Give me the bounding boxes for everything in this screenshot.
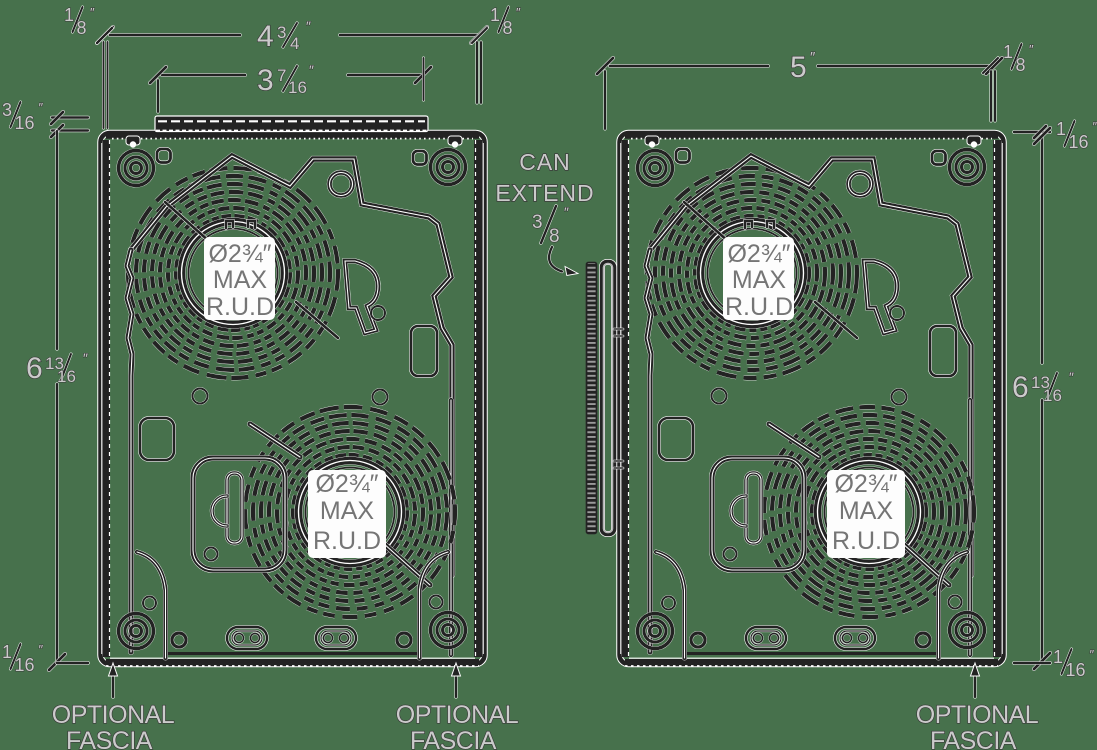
svg-text:″: ″ — [564, 204, 569, 220]
svg-text:EXTEND: EXTEND — [495, 180, 594, 206]
svg-text:6: 6 — [26, 352, 43, 385]
svg-text:″: ″ — [810, 49, 816, 66]
svg-text:CAN: CAN — [519, 149, 571, 175]
svg-text:Ø2¾″: Ø2¾″ — [727, 240, 790, 268]
svg-text:″: ″ — [1069, 369, 1074, 385]
svg-text:″: ″ — [83, 350, 88, 366]
svg-text:OPTIONAL: OPTIONAL — [916, 701, 1039, 729]
svg-text:3: 3 — [532, 212, 543, 233]
svg-text:6: 6 — [1012, 371, 1029, 404]
svg-text:R.U.D: R.U.D — [313, 527, 381, 555]
svg-text:16: 16 — [1066, 660, 1086, 680]
svg-text:MAX: MAX — [213, 266, 268, 294]
svg-text:R.U.D: R.U.D — [725, 293, 793, 321]
svg-text:FASCIA: FASCIA — [930, 727, 1017, 750]
svg-text:OPTIONAL: OPTIONAL — [396, 701, 519, 729]
svg-text:16: 16 — [1043, 386, 1062, 405]
svg-text:FASCIA: FASCIA — [410, 727, 497, 750]
svg-text:16: 16 — [1069, 132, 1089, 152]
svg-text:Ø2¾″: Ø2¾″ — [834, 470, 897, 498]
svg-text:″: ″ — [309, 62, 314, 78]
svg-text:16: 16 — [288, 78, 307, 97]
svg-text:″: ″ — [516, 5, 521, 20]
svg-text:4: 4 — [290, 34, 299, 53]
svg-text:″: ″ — [306, 18, 311, 34]
svg-text:″: ″ — [1090, 647, 1095, 662]
svg-text:7: 7 — [277, 66, 286, 85]
svg-text:1: 1 — [490, 5, 500, 25]
svg-text:1: 1 — [64, 5, 74, 25]
svg-text:1: 1 — [1053, 647, 1063, 667]
svg-text:Ø2¾″: Ø2¾″ — [208, 240, 271, 268]
svg-text:″: ″ — [39, 642, 44, 657]
svg-text:″: ″ — [1093, 119, 1097, 134]
svg-text:Ø2¾″: Ø2¾″ — [315, 470, 378, 498]
svg-text:1: 1 — [1003, 42, 1013, 62]
svg-text:8: 8 — [549, 226, 560, 247]
svg-text:8: 8 — [1016, 55, 1026, 75]
svg-text:″: ″ — [90, 5, 95, 20]
svg-text:MAX: MAX — [320, 497, 375, 525]
svg-text:8: 8 — [503, 18, 513, 38]
svg-text:R.U.D: R.U.D — [206, 293, 274, 321]
svg-text:MAX: MAX — [839, 497, 894, 525]
svg-text:16: 16 — [57, 367, 76, 386]
svg-text:OPTIONAL: OPTIONAL — [52, 701, 175, 729]
svg-text:3: 3 — [257, 64, 274, 97]
svg-text:MAX: MAX — [732, 266, 787, 294]
svg-text:1: 1 — [2, 642, 12, 662]
svg-text:″: ″ — [39, 100, 44, 115]
svg-text:3: 3 — [2, 100, 12, 120]
svg-text:3: 3 — [277, 23, 286, 42]
svg-text:8: 8 — [77, 18, 87, 38]
svg-text:16: 16 — [15, 655, 35, 675]
svg-text:FASCIA: FASCIA — [66, 727, 153, 750]
svg-text:16: 16 — [15, 113, 35, 133]
svg-text:5: 5 — [790, 51, 807, 84]
svg-text:4: 4 — [257, 20, 274, 53]
svg-text:1: 1 — [1056, 119, 1066, 139]
svg-text:″: ″ — [1029, 42, 1034, 57]
svg-text:R.U.D: R.U.D — [832, 527, 900, 555]
